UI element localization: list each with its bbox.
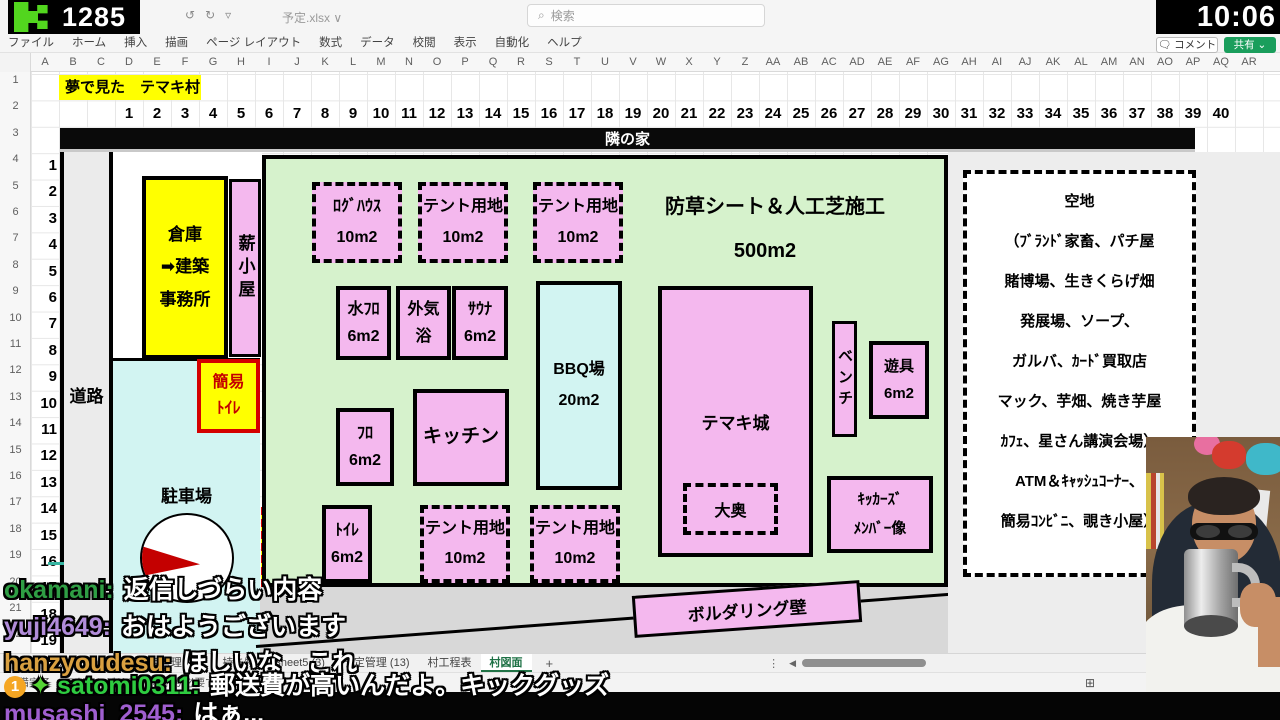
grid-number-top: 3 — [171, 101, 199, 127]
sheet-tab[interactable]: Sheet5 (3) — [265, 654, 334, 673]
column-header[interactable]: AK — [1039, 53, 1067, 72]
row-header[interactable]: 4 — [0, 153, 31, 165]
sheet-tab[interactable]: 村工程表 — [419, 654, 481, 673]
sheet-tab[interactable]: 予定管理 (13) — [334, 654, 419, 673]
grid-number-top: 2 — [143, 101, 171, 127]
webcam-video — [1146, 437, 1280, 692]
column-header[interactable]: G — [199, 53, 227, 72]
row-header[interactable]: 1 — [0, 74, 31, 86]
column-header[interactable]: J — [283, 53, 311, 72]
grid-number-top: 30 — [927, 101, 955, 127]
grid-number-left: 7 — [31, 311, 57, 337]
grid-number-top: 25 — [787, 101, 815, 127]
column-header[interactable]: T — [563, 53, 591, 72]
sheet-tab[interactable]: 村図面 — [481, 654, 532, 673]
column-header[interactable]: O — [423, 53, 451, 72]
share-button[interactable]: 共有 ⌄ — [1224, 37, 1276, 53]
grid-number-top: 33 — [1011, 101, 1039, 127]
column-header[interactable]: AL — [1067, 53, 1095, 72]
grid-number-top: 20 — [647, 101, 675, 127]
sheet-list-icon[interactable]: … — [55, 657, 66, 669]
search-input[interactable]: ⌕検索 — [527, 4, 765, 27]
row-header[interactable]: 14 — [0, 417, 31, 429]
comments-button[interactable]: 🗨 コメント — [1156, 37, 1218, 53]
normal-view-icon[interactable]: ⊞ — [1085, 676, 1095, 690]
column-header[interactable]: AP — [1179, 53, 1207, 72]
column-header[interactable]: K — [311, 53, 339, 72]
grid-number-left: 15 — [31, 523, 57, 549]
column-header[interactable]: B — [59, 53, 87, 72]
grid-number-left: 19 — [31, 628, 57, 654]
row-header-column: 1234567891011121314151617181920212223 — [0, 72, 31, 655]
column-header[interactable]: W — [647, 53, 675, 72]
person-arm — [1258, 597, 1280, 667]
grid-number-left: 8 — [31, 338, 57, 364]
ribbon-tab[interactable]: 自動化 — [495, 34, 530, 50]
grid-number-top: 27 — [843, 101, 871, 127]
column-header[interactable]: I — [255, 53, 283, 72]
row-header[interactable]: 5 — [0, 180, 31, 192]
grid-number-top: 16 — [535, 101, 563, 127]
column-header[interactable]: AM — [1095, 53, 1123, 72]
row-header[interactable]: 20 — [0, 576, 31, 588]
grid-number-left: 9 — [31, 364, 57, 390]
grid-number-top: 28 — [871, 101, 899, 127]
grid-number-top: 13 — [451, 101, 479, 127]
grid-number-top: 38 — [1151, 101, 1179, 127]
search-placeholder: 検索 — [551, 7, 575, 24]
accessibility-status[interactable]: アクセシビリティ: 検討が必要です — [64, 675, 226, 690]
row-header[interactable]: 2 — [0, 100, 31, 112]
row-header[interactable]: 12 — [0, 364, 31, 376]
select-all-corner[interactable] — [0, 53, 31, 72]
grid-number-top: 21 — [675, 101, 703, 127]
plush-toy-blue — [1246, 443, 1280, 475]
redo-icon[interactable]: ↻ — [205, 8, 225, 22]
column-header[interactable]: Z — [731, 53, 759, 72]
sunglasses-lens-right — [1228, 525, 1252, 538]
ribbon-tab-bar: ファイルホーム挿入描画ページ レイアウト数式データ校閲表示自動化ヘルプ — [0, 32, 1280, 53]
row-header[interactable]: 8 — [0, 259, 31, 271]
scroll-left-icon[interactable]: ◀ — [789, 658, 796, 669]
column-header[interactable]: A — [31, 53, 59, 72]
sunglasses-lens-left — [1196, 525, 1220, 538]
add-sheet-button[interactable]: + — [546, 656, 554, 671]
grid-number-left: 2 — [31, 179, 57, 205]
column-header[interactable]: AI — [983, 53, 1011, 72]
row-header[interactable]: 22 — [0, 628, 31, 640]
plush-toy-red — [1212, 441, 1246, 469]
search-icon: ⌕ — [538, 8, 545, 23]
stream-frame: ↺↻▿ 予定.xlsx ∨ ⌕検索 ファイルホーム挿入描画ページ レイアウト数式… — [0, 0, 1280, 720]
grid-number-top: 35 — [1067, 101, 1095, 127]
row-header[interactable]: 10 — [0, 312, 31, 324]
grid-number-top: 18 — [591, 101, 619, 127]
column-header[interactable]: AN — [1123, 53, 1151, 72]
column-header[interactable]: AB — [787, 53, 815, 72]
sheet-tab[interactable]: 予定管理 (26) — [129, 654, 214, 673]
grid-number-left: 1 — [31, 153, 57, 179]
grid-number-left: 13 — [31, 470, 57, 496]
row-header[interactable]: 11 — [0, 338, 31, 350]
ribbon-tab[interactable]: 挿入 — [124, 34, 147, 50]
grid-number-left: 3 — [31, 206, 57, 232]
grid-number-top: 24 — [759, 101, 787, 127]
column-header[interactable]: P — [451, 53, 479, 72]
row-header[interactable]: 15 — [0, 444, 31, 456]
column-header[interactable]: AG — [927, 53, 955, 72]
grid-number-top: 26 — [815, 101, 843, 127]
grid-number-top: 17 — [563, 101, 591, 127]
column-header[interactable]: F — [171, 53, 199, 72]
viewer-count: 1285 — [62, 2, 126, 33]
grid-number-left: 4 — [31, 232, 57, 258]
grid-number-left: 16 — [31, 549, 57, 575]
ribbon-tab[interactable]: ホーム — [72, 34, 106, 50]
ribbon-tab[interactable]: 数式 — [319, 34, 342, 50]
grid-number-top: 39 — [1179, 101, 1207, 127]
grid-number-top: 36 — [1095, 101, 1123, 127]
row-header[interactable]: 16 — [0, 470, 31, 482]
customize-icon[interactable]: ▿ — [225, 8, 241, 22]
ribbon-tab[interactable]: 描画 — [165, 34, 188, 50]
grid-number-top: 6 — [255, 101, 283, 127]
column-header[interactable]: AC — [815, 53, 843, 72]
grid-number-top: 9 — [339, 101, 367, 127]
grid-number-top: 11 — [395, 101, 423, 127]
tab-options-icon[interactable]: ⋮ — [768, 657, 779, 670]
grid-number-top: 22 — [703, 101, 731, 127]
column-header[interactable]: C — [87, 53, 115, 72]
quick-access-toolbar[interactable]: ↺↻▿ — [185, 8, 241, 22]
column-header[interactable]: Q — [479, 53, 507, 72]
row-header[interactable]: 3 — [0, 127, 31, 139]
sheet-tab[interactable]: 持ち物 — [214, 654, 265, 673]
grid-number-left: 5 — [31, 259, 57, 285]
row-header[interactable]: 6 — [0, 206, 31, 218]
column-header[interactable]: N — [395, 53, 423, 72]
steel-mug-base — [1184, 615, 1238, 637]
ready-status: 準備完了 — [8, 675, 50, 690]
row-header[interactable]: 19 — [0, 549, 31, 561]
grid-number-top: 12 — [423, 101, 451, 127]
grid-number-top: 14 — [479, 101, 507, 127]
grid-number-top: 32 — [983, 101, 1011, 127]
grid-number-top: 23 — [731, 101, 759, 127]
row-header[interactable]: 21 — [0, 602, 31, 614]
clock-overlay: 10:06 — [1156, 0, 1280, 34]
grid-number-top: 19 — [619, 101, 647, 127]
row-header[interactable]: 9 — [0, 285, 31, 297]
column-header-row: ABCDEFGHIJKLMNOPQRSTUVWXYZAAABACADAEAFAG… — [0, 53, 1280, 72]
column-header[interactable]: AO — [1151, 53, 1179, 72]
column-header[interactable]: AA — [759, 53, 787, 72]
ribbon-tab[interactable]: ファイル — [8, 34, 54, 50]
grid-number-top: 7 — [283, 101, 311, 127]
sheet-tab-bar: … Sheet4予定管理 (26)持ち物Sheet5 (3)予定管理 (13)村… — [0, 653, 1280, 672]
row-header[interactable]: 18 — [0, 523, 31, 535]
grid-number-top: 37 — [1123, 101, 1151, 127]
person-hair — [1188, 477, 1260, 515]
column-header[interactable]: H — [227, 53, 255, 72]
ribbon-tab[interactable]: ヘルプ — [547, 34, 582, 50]
undo-icon[interactable]: ↺ — [185, 8, 205, 22]
ribbon-tab[interactable]: 表示 — [454, 34, 477, 50]
ribbon-tab[interactable]: 校閲 — [413, 34, 436, 50]
grid-number-top: 4 — [199, 101, 227, 127]
horizontal-scrollbar[interactable] — [802, 659, 926, 667]
column-header[interactable]: AH — [955, 53, 983, 72]
row-header[interactable]: 17 — [0, 496, 31, 508]
grid-number-left: 18 — [31, 602, 57, 628]
column-header[interactable]: U — [591, 53, 619, 72]
row-header[interactable]: 7 — [0, 232, 31, 244]
column-header[interactable]: Y — [703, 53, 731, 72]
sheet-title-cell[interactable]: 夢で見た テマキ村 — [59, 75, 201, 100]
bottom-black-bar — [0, 692, 1280, 720]
column-header[interactable]: AD — [843, 53, 871, 72]
column-header[interactable]: AF — [899, 53, 927, 72]
grid-number-left: 14 — [31, 496, 57, 522]
column-header[interactable]: AQ — [1207, 53, 1235, 72]
column-header[interactable]: V — [619, 53, 647, 72]
grid-number-left: 12 — [31, 443, 57, 469]
grid-number-top: 1 — [115, 101, 143, 127]
column-header[interactable]: R — [507, 53, 535, 72]
column-header[interactable]: AR — [1235, 53, 1263, 72]
grid-number-top: 15 — [507, 101, 535, 127]
file-name[interactable]: 予定.xlsx ∨ — [282, 9, 342, 26]
sheet-tab[interactable]: Sheet4 — [76, 654, 129, 673]
grid-number-top: 34 — [1039, 101, 1067, 127]
grid-number-top: 40 — [1207, 101, 1235, 127]
column-header[interactable]: AJ — [1011, 53, 1039, 72]
column-header[interactable]: X — [675, 53, 703, 72]
column-header[interactable]: D — [115, 53, 143, 72]
column-header[interactable]: AE — [871, 53, 899, 72]
grid-number-left: 6 — [31, 285, 57, 311]
spreadsheet-grid[interactable] — [0, 72, 1280, 655]
column-header[interactable]: M — [367, 53, 395, 72]
channel-badge: 1285 — [8, 0, 140, 34]
grid-number-top: 5 — [227, 101, 255, 127]
grid-number-top: 10 — [367, 101, 395, 127]
column-header[interactable]: S — [535, 53, 563, 72]
ribbon-tab[interactable]: データ — [360, 34, 395, 50]
channel-logo-icon — [14, 2, 54, 32]
column-header[interactable]: L — [339, 53, 367, 72]
ribbon-tab[interactable]: ページ レイアウト — [206, 34, 301, 50]
grid-number-top: 31 — [955, 101, 983, 127]
grid-number-left: 11 — [31, 417, 57, 443]
grid-number-top: 29 — [899, 101, 927, 127]
row-header[interactable]: 13 — [0, 391, 31, 403]
excel-titlebar: ↺↻▿ 予定.xlsx ∨ ⌕検索 — [0, 0, 1280, 32]
column-header[interactable]: E — [143, 53, 171, 72]
grid-number-top: 8 — [311, 101, 339, 127]
grid-number-left: 10 — [31, 391, 57, 417]
grid-number-left: 17 — [31, 575, 57, 601]
